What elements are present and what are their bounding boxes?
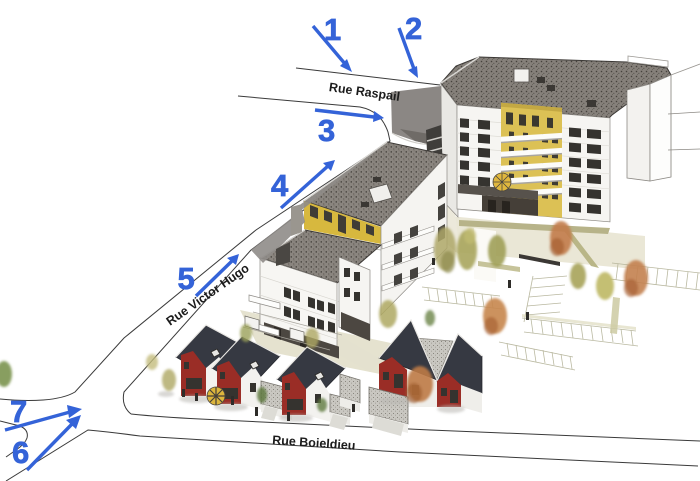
- svg-text:5: 5: [178, 261, 195, 296]
- svg-text:6: 6: [12, 435, 29, 470]
- svg-text:1: 1: [324, 12, 341, 47]
- svg-text:7: 7: [10, 394, 27, 429]
- svg-text:3: 3: [318, 113, 335, 148]
- svg-text:4: 4: [271, 168, 289, 203]
- svg-text:2: 2: [405, 11, 422, 46]
